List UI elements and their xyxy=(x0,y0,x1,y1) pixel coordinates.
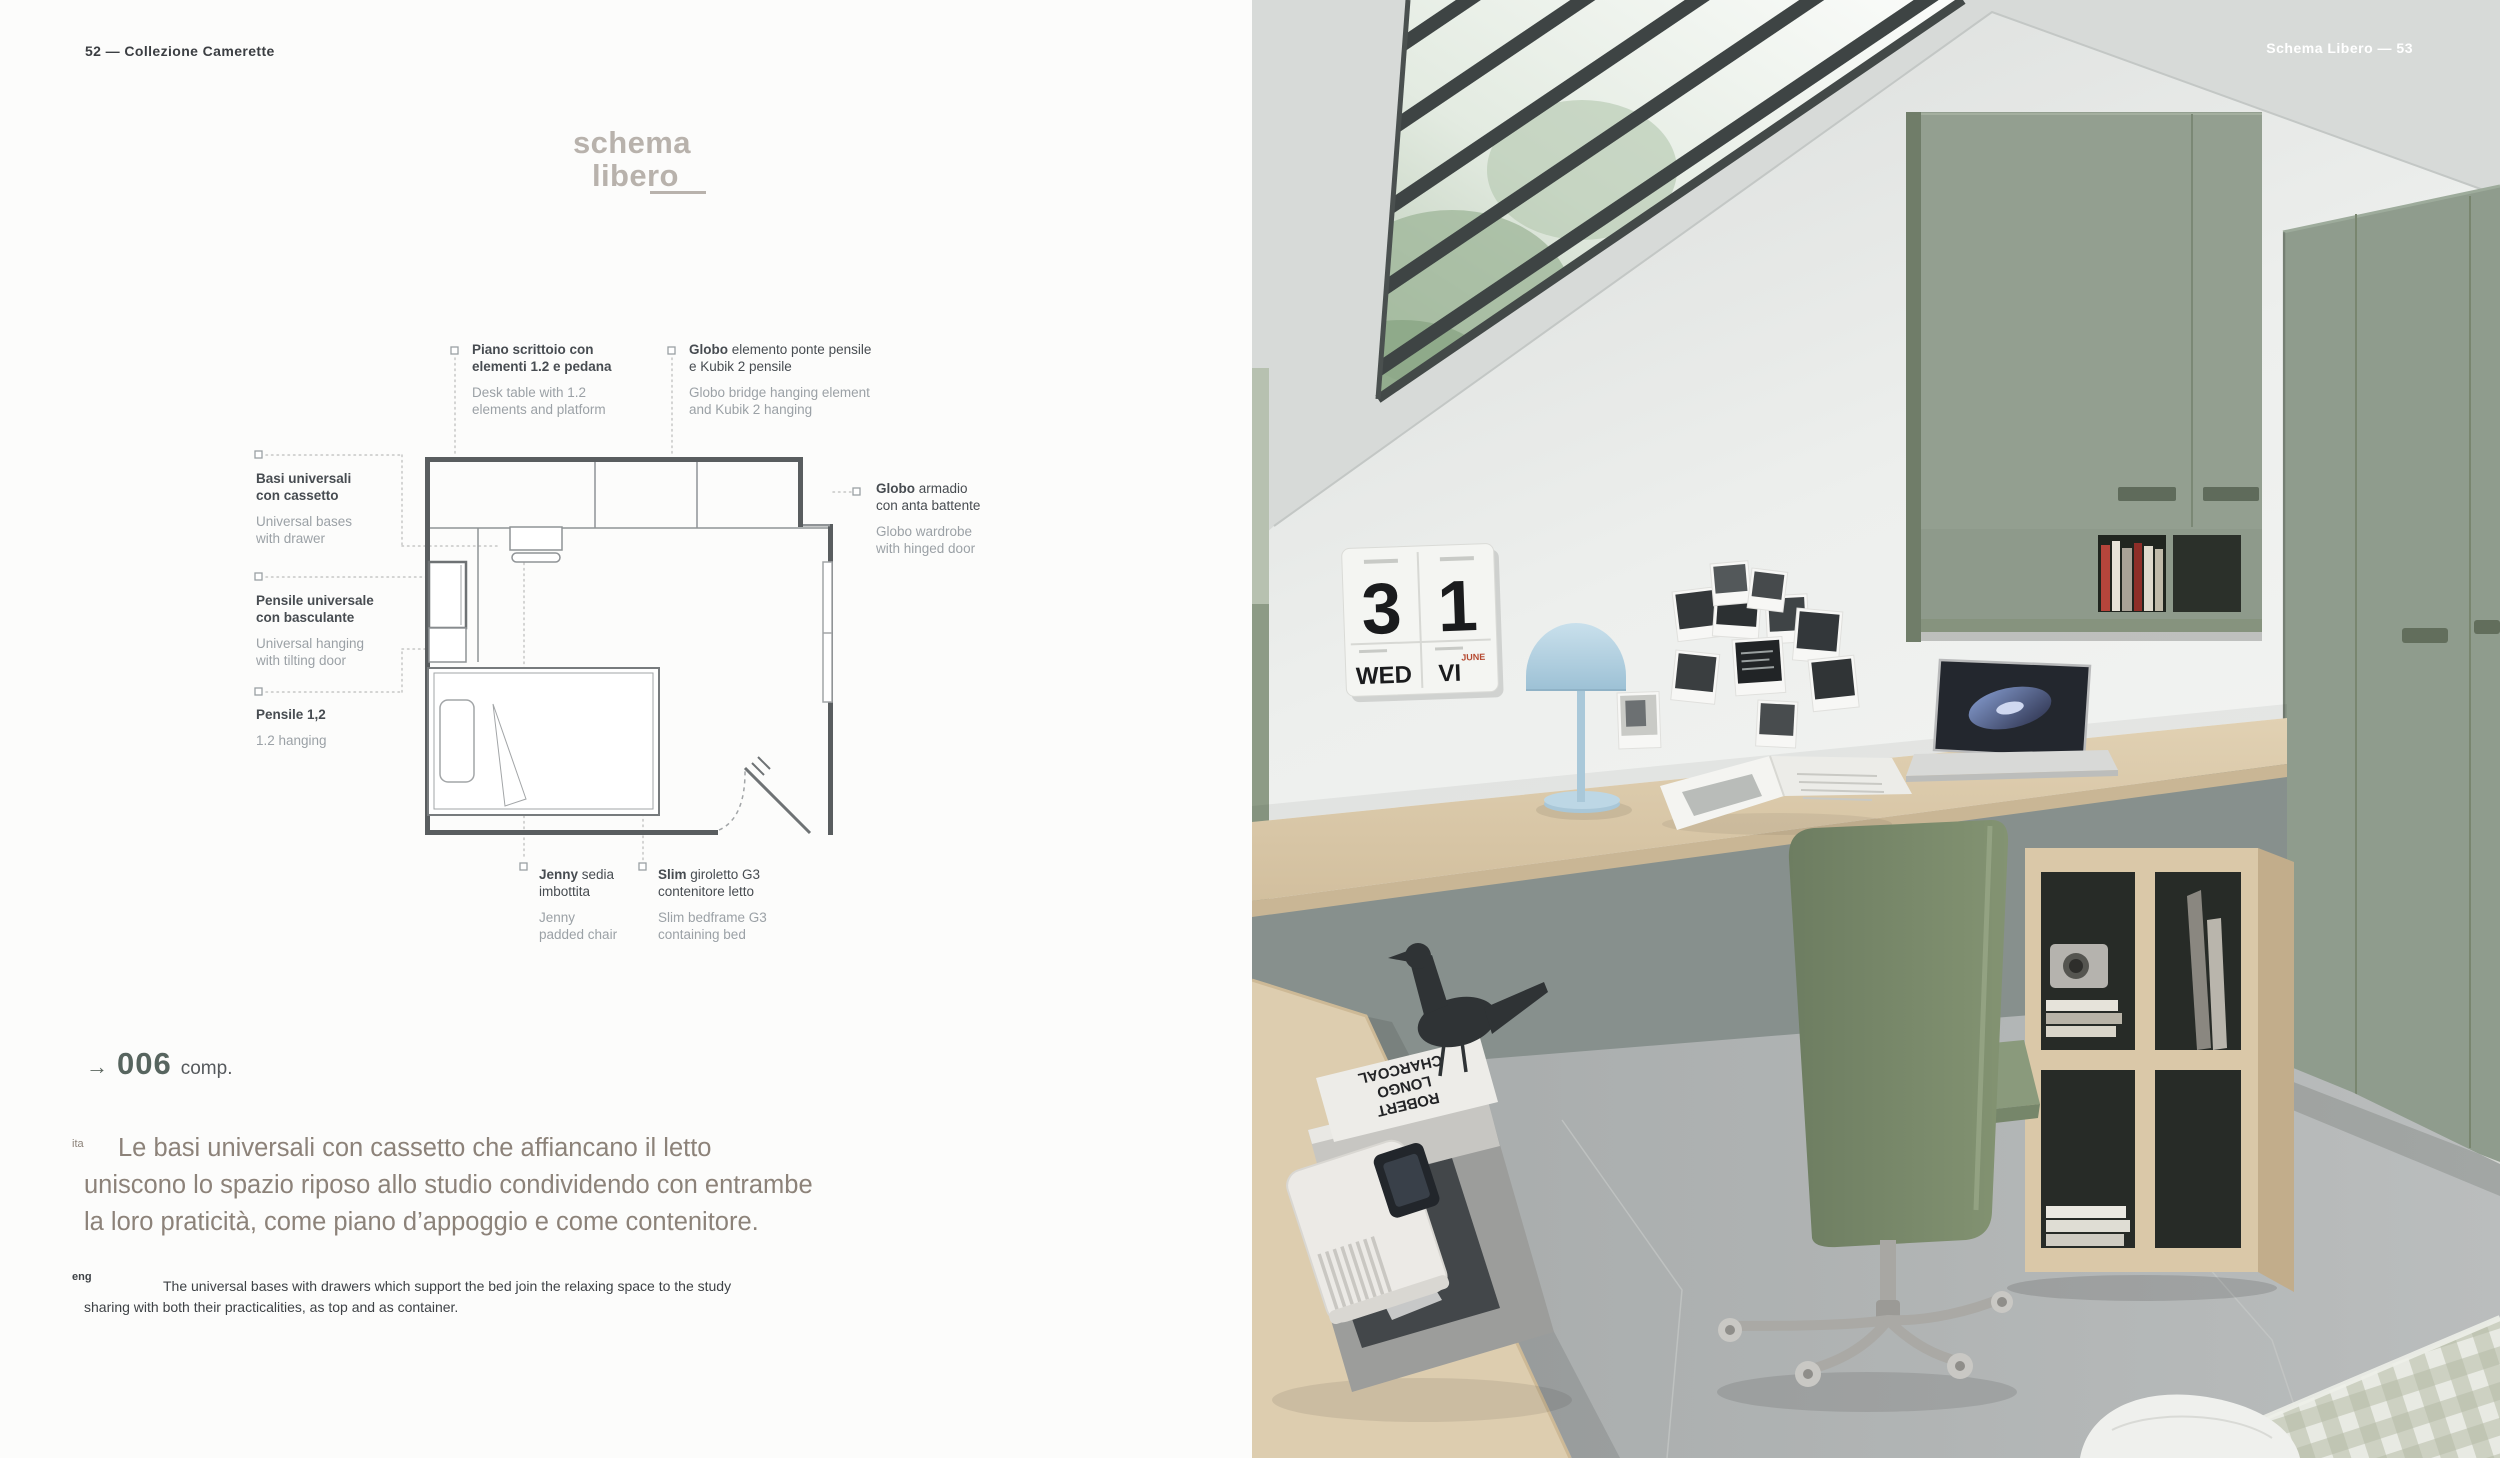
plan-label-jenny-chair: Jenny sedia imbottita Jenny padded chair xyxy=(539,866,649,943)
plan-label-globo-bridge: Globo elemento ponte pensile e Kubik 2 p… xyxy=(689,341,914,418)
room-illustration: 3 1 WED VI JUNE xyxy=(1252,0,2500,1458)
room-photo: 3 1 WED VI JUNE xyxy=(1252,0,2500,1458)
plan-top-units xyxy=(430,462,828,662)
ita-language-tag: ita xyxy=(72,1138,84,1150)
cube-shelf xyxy=(2007,848,2294,1301)
plan-label-universal-bases: Basi universali con cassetto Universal b… xyxy=(256,470,441,547)
page-header-right: Schema Libero — 53 xyxy=(2266,40,2413,56)
catalog-left-page: 52 — Collezione Camerette schema libero xyxy=(0,0,1252,1458)
composition-row: → 006 comp. xyxy=(86,1046,232,1082)
plan-wall-step xyxy=(803,524,830,527)
laptop xyxy=(1906,660,2118,782)
plan-label-hanging-12: Pensile 1,2 1.2 hanging xyxy=(256,706,441,749)
english-paragraph: The universal bases with drawers which s… xyxy=(84,1276,884,1318)
calendar-weekday: WED xyxy=(1355,661,1412,690)
wardrobe-handle xyxy=(2402,628,2448,643)
composition-number: 006 xyxy=(117,1046,172,1082)
plan-window xyxy=(823,562,832,702)
wardrobe-handle xyxy=(2474,620,2500,634)
open-cube xyxy=(2173,535,2241,612)
plan-door xyxy=(719,757,810,833)
camera xyxy=(2050,944,2108,988)
hanging-cabinet xyxy=(1906,112,2262,642)
shelf-cube xyxy=(2155,1070,2241,1248)
arrow-right-icon: → xyxy=(86,1054,108,1080)
cabinet-handle xyxy=(2118,487,2176,501)
cabinet-handle xyxy=(2203,487,2259,501)
catalog-spread: 52 — Collezione Camerette schema libero xyxy=(0,0,2500,1458)
plan-label-desk: Piano scrittoio con elementi 1.2 e pedan… xyxy=(472,341,657,418)
composition-suffix: comp. xyxy=(181,1058,233,1080)
calendar-day-digit: 3 xyxy=(1360,569,1403,650)
calendar-month-label: JUNE xyxy=(1461,652,1485,663)
wall-calendar: 3 1 WED VI JUNE xyxy=(1341,543,1503,702)
italian-paragraph: Le basi universali con cassetto che affi… xyxy=(84,1130,974,1241)
wardrobe xyxy=(2283,186,2500,1162)
plan-label-slim-bed: Slim giroletto G3 contenitore letto Slim… xyxy=(658,866,843,943)
calendar-day-digit: 1 xyxy=(1436,566,1479,647)
plan-label-universal-hanging: Pensile universale con basculante Univer… xyxy=(256,592,441,669)
plan-label-globo-wardrobe: Globo armadio con anta battente Globo wa… xyxy=(876,480,1061,557)
calendar-month: VI xyxy=(1438,660,1462,688)
plan-bed xyxy=(428,668,659,815)
